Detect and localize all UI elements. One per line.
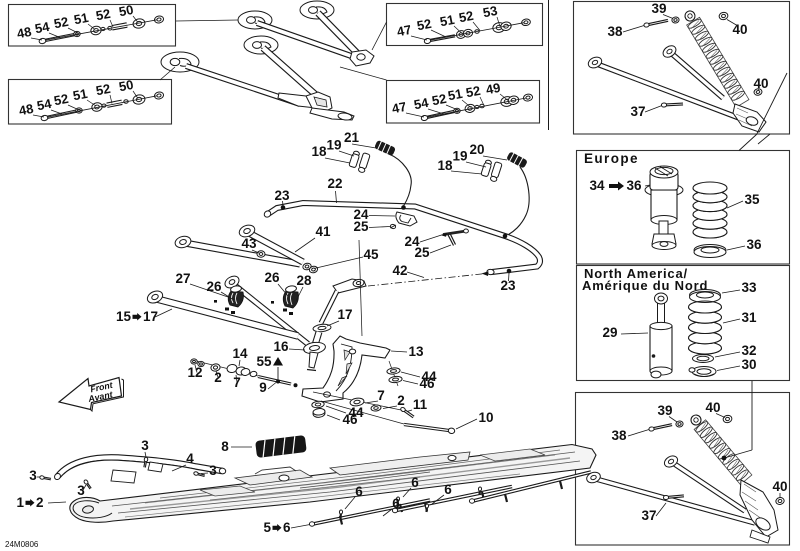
svg-text:1: 1	[16, 495, 24, 510]
svg-text:32: 32	[741, 343, 756, 358]
svg-text:31: 31	[741, 310, 757, 325]
svg-text:3: 3	[29, 468, 37, 483]
svg-text:Europe: Europe	[584, 151, 639, 166]
svg-text:40: 40	[772, 479, 787, 494]
svg-text:49: 49	[485, 80, 502, 97]
svg-text:52: 52	[416, 16, 433, 33]
svg-text:51: 51	[72, 86, 89, 103]
svg-text:48: 48	[18, 101, 35, 118]
svg-text:7: 7	[233, 375, 241, 390]
svg-text:51: 51	[447, 86, 464, 103]
svg-text:10: 10	[478, 410, 493, 425]
svg-text:18: 18	[311, 144, 327, 159]
svg-text:8: 8	[221, 439, 229, 454]
svg-text:6: 6	[355, 484, 363, 499]
svg-text:47: 47	[391, 99, 408, 116]
svg-text:40: 40	[753, 76, 768, 91]
svg-text:16: 16	[273, 339, 289, 354]
svg-text:26: 26	[206, 279, 222, 294]
svg-text:52: 52	[53, 14, 70, 31]
svg-text:35: 35	[744, 192, 760, 207]
svg-text:29: 29	[602, 325, 617, 340]
svg-text:24M0806: 24M0806	[5, 540, 39, 549]
svg-text:2: 2	[397, 393, 405, 408]
svg-text:43: 43	[241, 236, 257, 251]
svg-text:52: 52	[95, 6, 112, 23]
svg-text:23: 23	[274, 188, 290, 203]
svg-text:33: 33	[741, 280, 757, 295]
svg-text:3: 3	[77, 483, 85, 498]
svg-text:13: 13	[408, 344, 424, 359]
svg-text:34: 34	[589, 178, 605, 193]
svg-text:20: 20	[469, 142, 484, 157]
svg-text:42: 42	[392, 263, 407, 278]
svg-text:4: 4	[186, 451, 194, 466]
svg-text:39: 39	[651, 1, 666, 16]
svg-text:46: 46	[419, 376, 435, 391]
svg-text:12: 12	[187, 365, 202, 380]
svg-text:25: 25	[414, 245, 430, 260]
svg-text:46: 46	[342, 412, 358, 427]
svg-text:36: 36	[626, 178, 642, 193]
svg-text:47: 47	[396, 22, 413, 39]
svg-text:Amérique du Nord: Amérique du Nord	[582, 278, 708, 293]
svg-text:50: 50	[118, 77, 135, 94]
svg-text:25: 25	[353, 219, 369, 234]
svg-text:2: 2	[214, 370, 222, 385]
svg-text:38: 38	[611, 428, 627, 443]
svg-text:37: 37	[641, 508, 656, 523]
svg-text:50: 50	[118, 2, 135, 19]
svg-text:19: 19	[452, 149, 467, 164]
svg-text:15: 15	[116, 309, 132, 324]
svg-text:2: 2	[36, 495, 44, 510]
svg-text:21: 21	[344, 130, 360, 145]
svg-text:38: 38	[607, 24, 623, 39]
svg-text:19: 19	[326, 138, 341, 153]
svg-text:53: 53	[482, 3, 499, 20]
svg-text:45: 45	[363, 247, 379, 262]
svg-text:27: 27	[175, 271, 190, 286]
svg-text:40: 40	[705, 400, 720, 415]
svg-text:6: 6	[411, 475, 419, 490]
svg-text:9: 9	[259, 380, 267, 395]
svg-text:41: 41	[315, 224, 331, 239]
svg-text:6: 6	[392, 496, 400, 511]
svg-text:37: 37	[630, 104, 645, 119]
svg-text:55: 55	[256, 354, 272, 369]
svg-text:6: 6	[444, 482, 452, 497]
svg-text:48: 48	[16, 24, 33, 41]
svg-text:11: 11	[413, 397, 428, 412]
svg-text:22: 22	[327, 176, 342, 191]
svg-text:52: 52	[431, 91, 448, 108]
svg-text:5: 5	[263, 520, 271, 535]
svg-text:6: 6	[283, 520, 291, 535]
svg-text:39: 39	[657, 403, 672, 418]
svg-text:18: 18	[437, 158, 453, 173]
svg-text:7: 7	[377, 388, 385, 403]
svg-text:36: 36	[746, 237, 762, 252]
svg-text:26: 26	[264, 270, 280, 285]
svg-text:28: 28	[296, 273, 312, 288]
svg-text:3: 3	[141, 438, 149, 453]
svg-text:52: 52	[53, 91, 70, 108]
svg-text:3: 3	[209, 463, 217, 478]
svg-text:51: 51	[439, 12, 456, 29]
svg-text:30: 30	[741, 357, 756, 372]
svg-text:52: 52	[458, 8, 475, 25]
svg-text:52: 52	[95, 81, 112, 98]
svg-text:14: 14	[232, 346, 248, 361]
svg-text:52: 52	[465, 83, 482, 100]
svg-text:51: 51	[73, 10, 90, 27]
svg-text:17: 17	[337, 307, 352, 322]
